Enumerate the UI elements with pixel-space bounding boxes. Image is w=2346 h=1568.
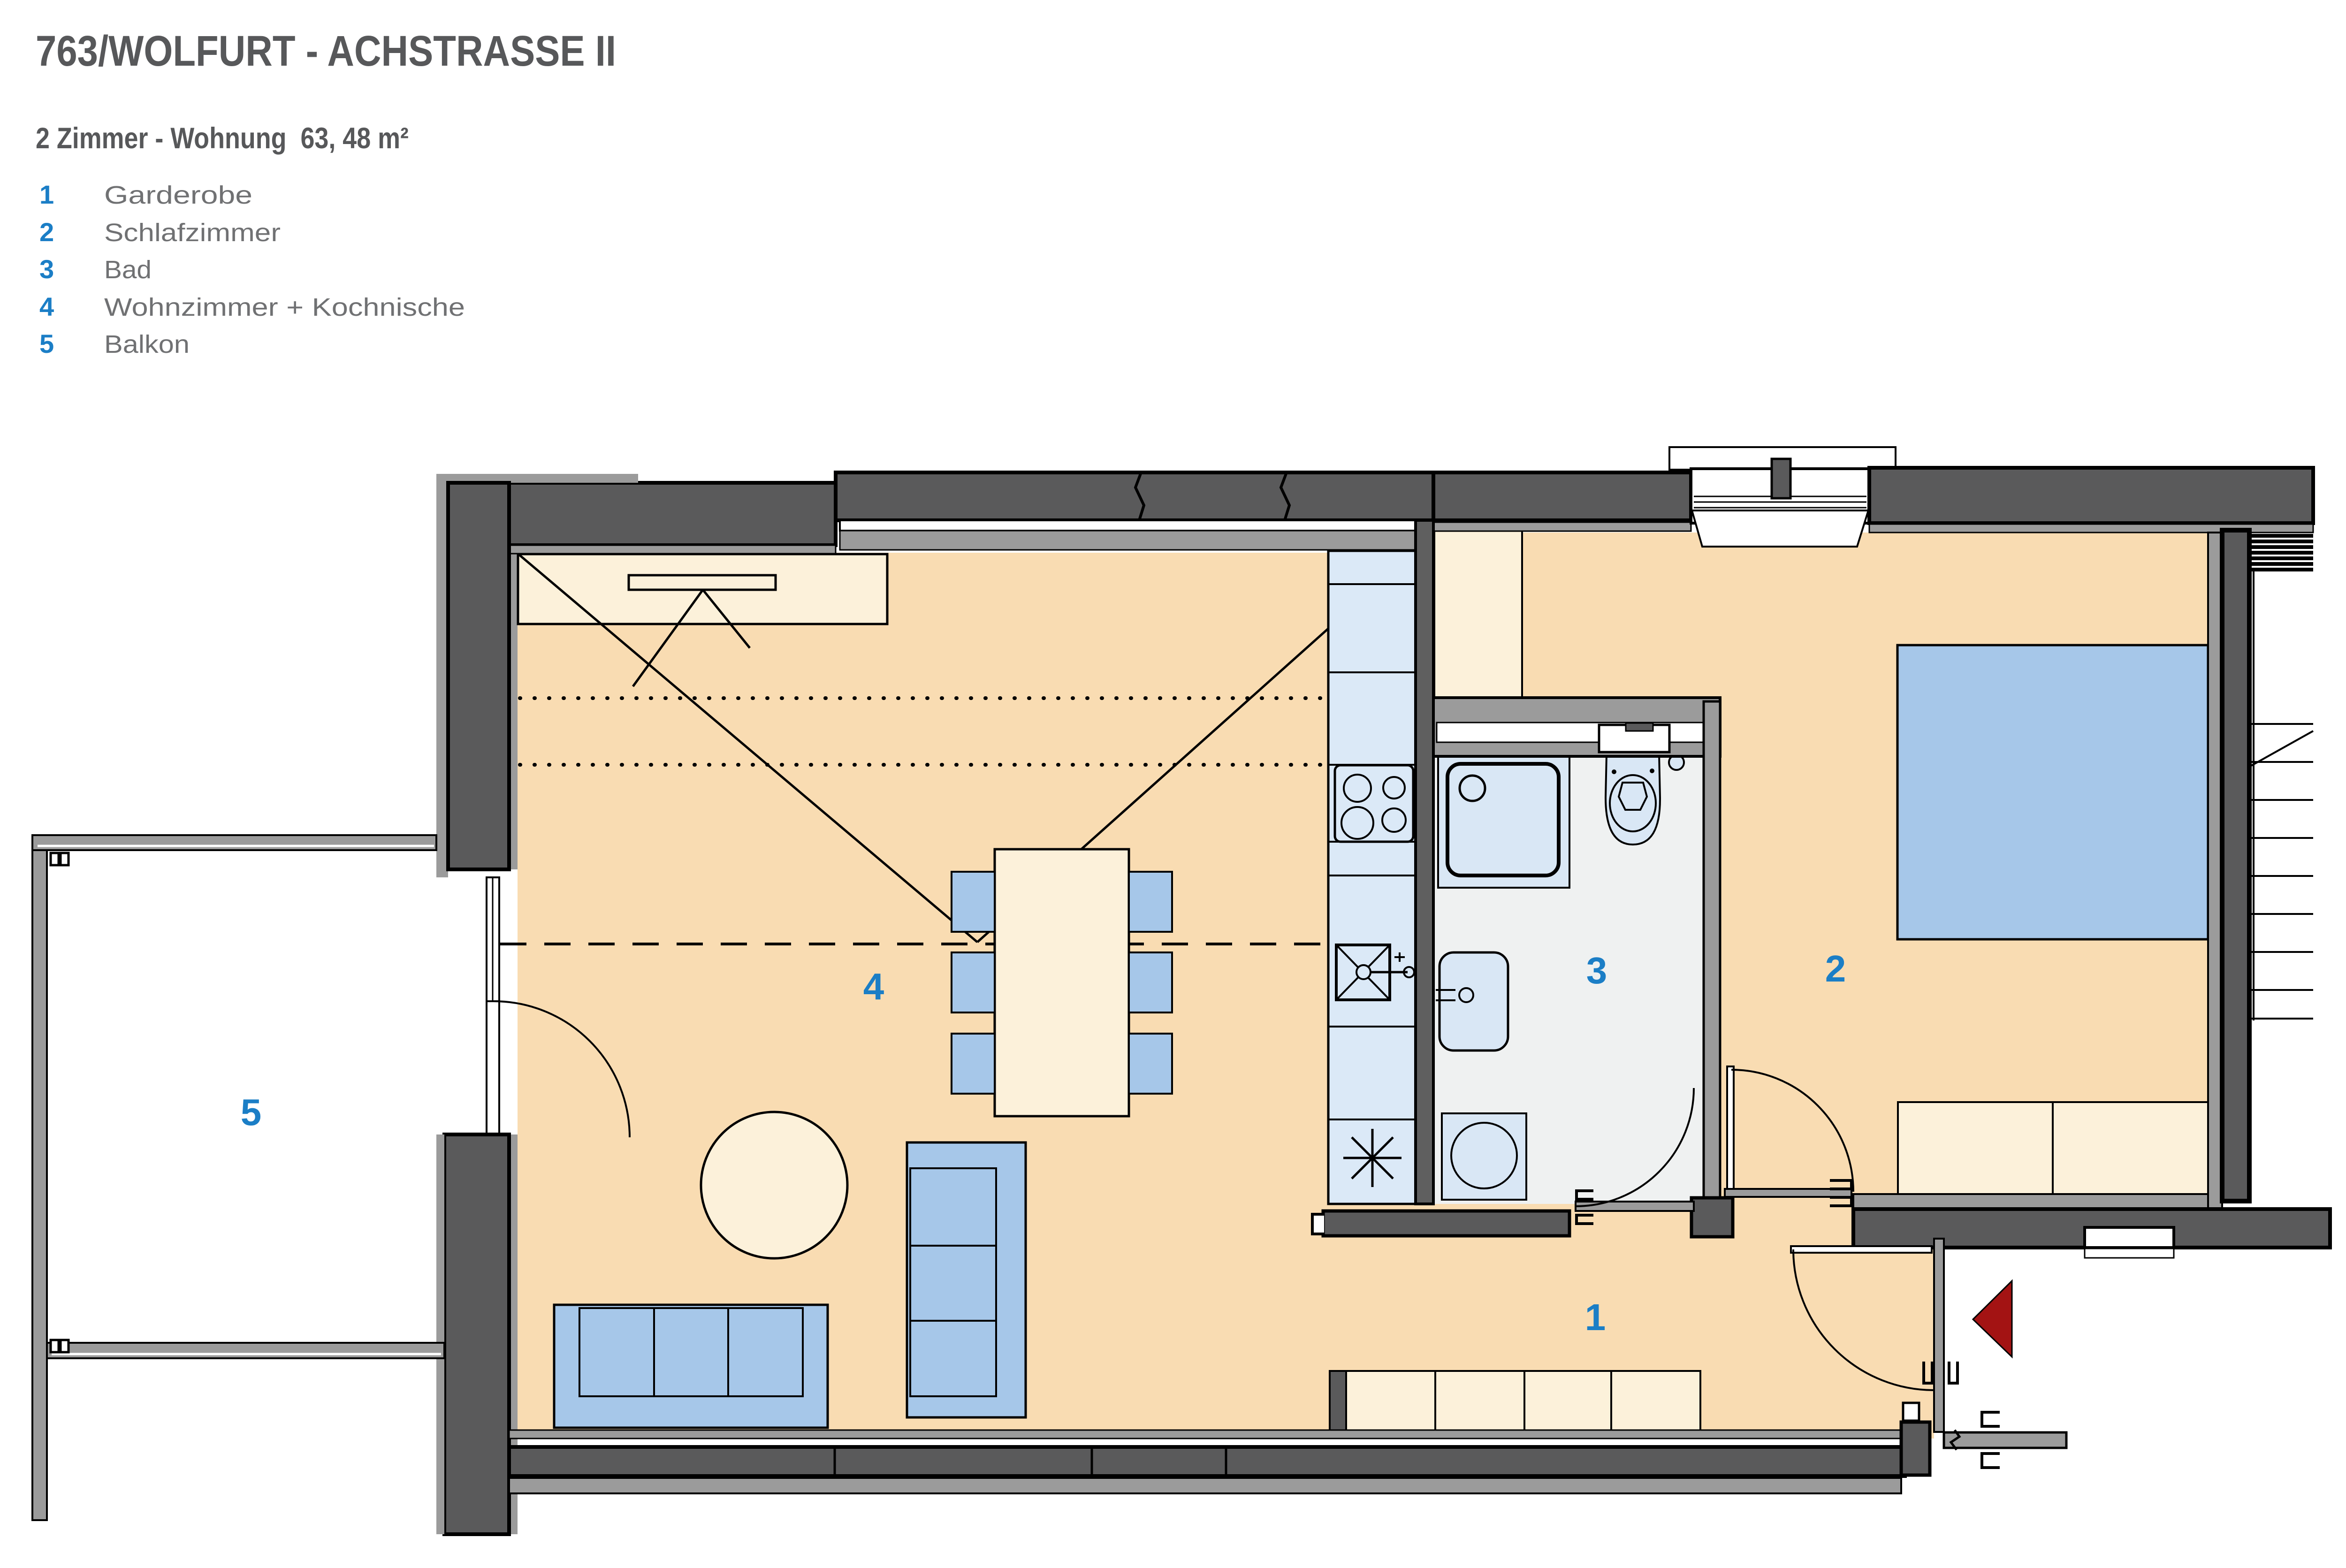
svg-text:Wohnzimmer + Kochnische: Wohnzimmer + Kochnische [104,293,465,321]
svg-text:Bad: Bad [104,256,152,284]
svg-text:3: 3 [39,254,54,284]
svg-text:5: 5 [241,1091,262,1133]
svg-text:4: 4 [39,292,54,321]
svg-text:763/WOLFURT - ACHSTRASSE II: 763/WOLFURT - ACHSTRASSE II [36,27,616,75]
svg-text:4: 4 [863,966,884,1007]
svg-text:2: 2 [1825,948,1846,990]
svg-text:Garderobe: Garderobe [104,181,252,209]
svg-text:5: 5 [39,329,54,358]
svg-text:1: 1 [1585,1296,1606,1338]
svg-text:2 Zimmer - Wohnung 63, 48 m²: 2 Zimmer - Wohnung 63, 48 m² [36,122,409,155]
svg-text:Schlafzimmer: Schlafzimmer [104,219,281,247]
svg-text:2: 2 [39,217,54,247]
svg-text:1: 1 [39,180,54,209]
svg-text:3: 3 [1586,950,1607,991]
svg-text:Balkon: Balkon [104,330,190,358]
